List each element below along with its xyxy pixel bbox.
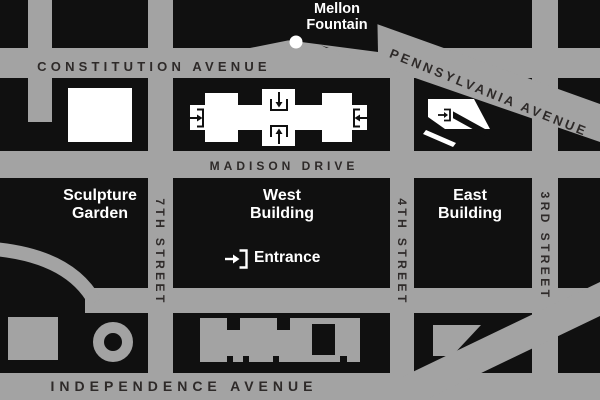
legend-entrance-icon: [225, 251, 247, 268]
nga-area-map: CONSTITUTION AVENUE MADISON DRIVE INDEPE…: [0, 0, 600, 400]
sculpture-garden-label: Sculpture Garden: [40, 187, 160, 222]
mellon-fountain-label: Mellon Fountain: [287, 1, 387, 33]
entrance-legend-label: Entrance: [254, 249, 320, 267]
mellon-fountain-label-line1: Mellon: [314, 1, 360, 17]
gray-square-building: [8, 317, 58, 360]
notch-cutout: [243, 356, 249, 362]
sculpture-garden-label-line1: Sculpture: [63, 187, 137, 204]
east-building-footprint: [423, 99, 490, 147]
notch-cutout: [273, 356, 279, 362]
notch-cutout: [340, 356, 347, 362]
mellon-fountain-dot: [290, 36, 303, 49]
mellon-fountain-label-line2: Fountain: [306, 17, 367, 33]
east-building-label: East Building: [410, 187, 530, 222]
west-building-label-line1: West: [263, 187, 301, 204]
east-building-label-line2: Building: [438, 205, 502, 222]
west-building-label-line2: Building: [250, 205, 314, 222]
west-building-label: West Building: [222, 187, 342, 222]
constitution-avenue-label: CONSTITUTION AVENUE: [36, 59, 272, 74]
curved-drive-road: [0, 249, 95, 302]
madison-drive-label: MADISON DRIVE: [200, 159, 368, 173]
ring-fountain: [99, 328, 128, 357]
east-building-label-line1: East: [453, 187, 487, 204]
fourth-street-label: 4TH STREET: [395, 192, 409, 312]
notch-cutout: [277, 318, 290, 330]
courtyard-cutout: [312, 324, 335, 355]
notch-cutout: [227, 318, 240, 330]
sculpture-garden-label-line2: Garden: [72, 205, 128, 222]
third-street-label: 3RD STREET: [538, 186, 552, 306]
notch-cutout: [227, 356, 233, 362]
independence-avenue-label: INDEPENDENCE AVENUE: [34, 378, 334, 394]
white-square-building: [68, 88, 132, 142]
